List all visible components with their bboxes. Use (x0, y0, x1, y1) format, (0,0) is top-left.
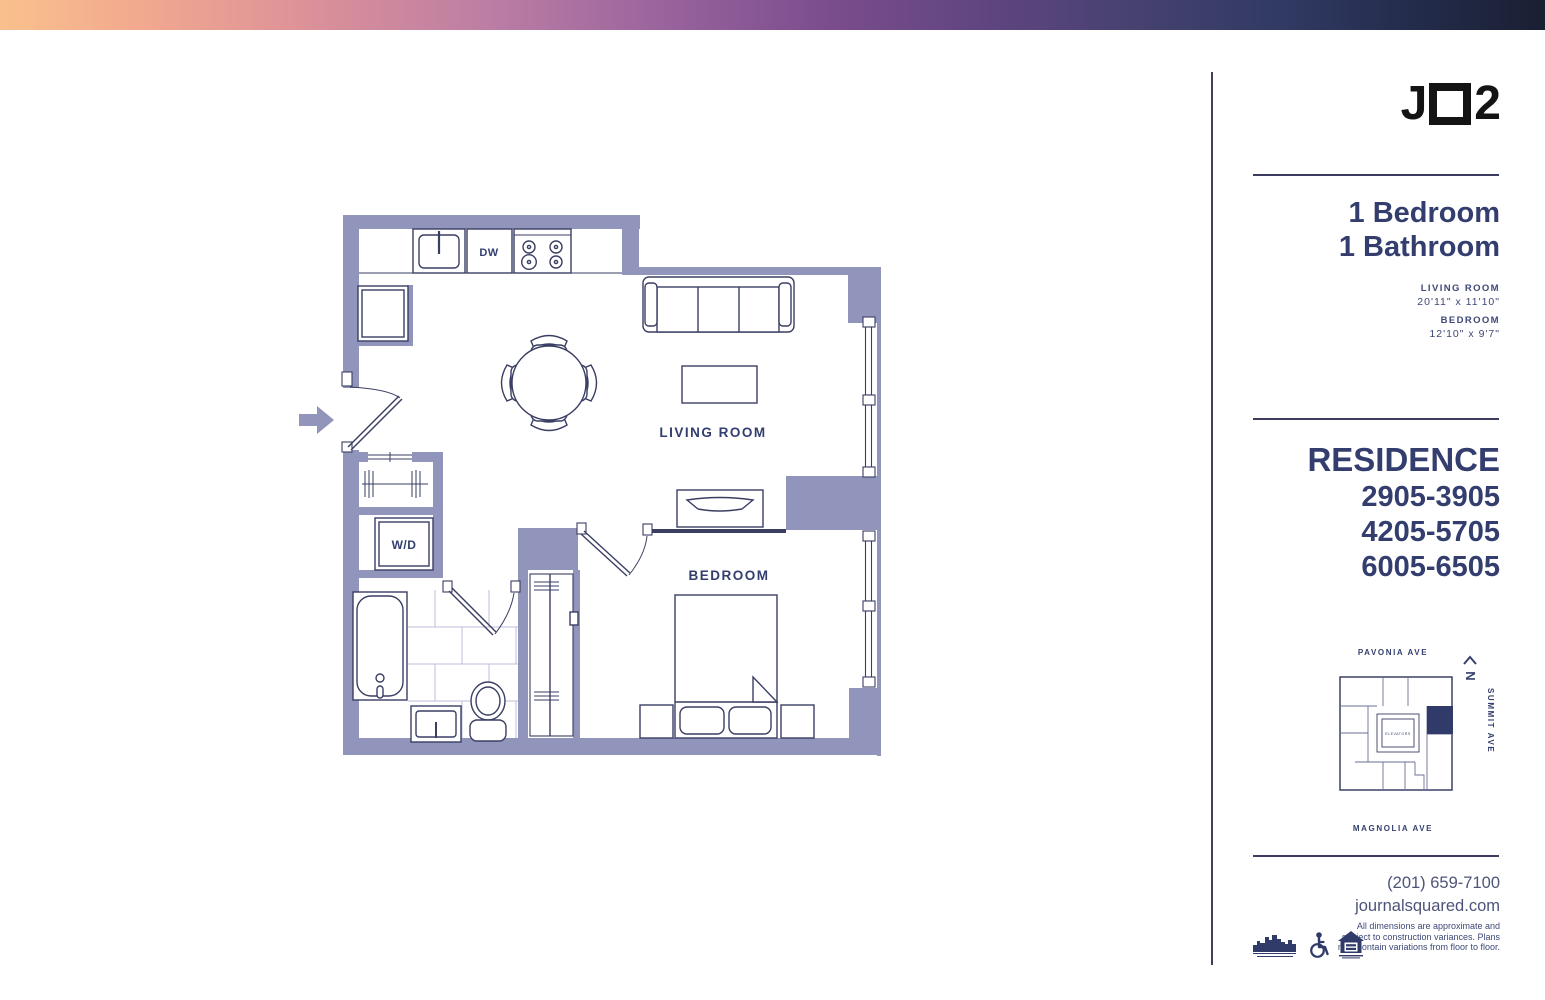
tv-screen (687, 498, 753, 512)
bedroom-window (863, 531, 875, 687)
stove (514, 229, 571, 273)
linen-closet (530, 574, 578, 736)
toilet (470, 682, 506, 741)
living-room-dim-label: LIVING ROOM (1417, 283, 1500, 294)
north-arrow-icon: N (1463, 657, 1478, 681)
gradient-banner (0, 0, 1545, 30)
logo-square-icon (1429, 83, 1471, 125)
phone-number: (201) 659-7100 (1355, 872, 1500, 895)
horizontal-rule (1253, 418, 1499, 420)
bed (675, 595, 777, 738)
walls (343, 215, 881, 756)
bedroom-label: BEDROOM (689, 568, 770, 583)
nightstand (640, 705, 673, 738)
bedroom-door (577, 523, 652, 576)
horizontal-rule (1253, 174, 1499, 176)
unit-title-line1: 1 Bedroom (1339, 196, 1500, 230)
dishwasher: DW (467, 229, 512, 273)
north-label: N (1463, 671, 1478, 680)
accessibility-icon (1308, 931, 1329, 959)
washer-dryer-label: W/D (392, 538, 417, 552)
residence-range: 4205-5705 (1307, 515, 1500, 550)
street-bottom-label: MAGNOLIA AVE (1353, 824, 1433, 833)
tv-console (677, 490, 763, 527)
kitchen: DW (358, 229, 622, 341)
closet-knob (570, 612, 578, 625)
living-room-window (863, 317, 875, 477)
unit-highlight (1427, 706, 1453, 734)
bedroom-dim-label: BEDROOM (1417, 315, 1500, 326)
refrigerator (358, 286, 408, 341)
living-room-label: LIVING ROOM (659, 425, 766, 440)
residence-heading: RESIDENCE (1307, 440, 1500, 480)
jsq2-logo: J 2 (1401, 80, 1500, 128)
vanity-sink (411, 706, 461, 742)
coffee-table (682, 366, 757, 403)
street-top-label: PAVONIA AVE (1358, 648, 1428, 657)
pillow (680, 707, 724, 734)
entry-door (342, 372, 402, 452)
elevators-label: ELEVATORS (1385, 732, 1411, 736)
kitchen-sink (413, 229, 465, 273)
unit-dimensions: LIVING ROOM 20'11" x 11'10" BEDROOM 12'1… (1417, 283, 1500, 347)
certification-icons (1253, 931, 1364, 959)
floor-plan: DW (290, 200, 900, 770)
bathtub (353, 592, 407, 700)
bedroom: BEDROOM (577, 523, 814, 738)
disclaimer-line: All dimensions are approximate and (1338, 921, 1500, 932)
dishwasher-label: DW (479, 247, 498, 259)
sofa (643, 277, 794, 332)
bathroom (353, 581, 520, 742)
living-room: LIVING ROOM (643, 277, 794, 527)
flyer-page: DW (0, 0, 1545, 1000)
equal-housing-icon (1338, 931, 1364, 959)
bedroom-dim-size: 12'10" x 9'7" (1417, 328, 1500, 340)
unit-title-line2: 1 Bathroom (1339, 230, 1500, 264)
unit-title: 1 Bedroom 1 Bathroom (1339, 196, 1500, 264)
entry-arrow-icon (299, 406, 334, 434)
skyline-logo (1253, 931, 1299, 959)
vertical-divider (1211, 72, 1213, 965)
nightstand (781, 705, 814, 738)
table-top (512, 346, 586, 420)
dining-table (502, 336, 597, 431)
washer-dryer: W/D (375, 518, 433, 570)
key-plan: PAVONIA AVE MAGNOLIA AVE N ELEVATORS (1320, 640, 1510, 840)
logo-2: 2 (1474, 80, 1500, 128)
logo-j: J (1401, 80, 1427, 128)
residence-block: RESIDENCE 2905-3905 4205-5705 6005-6505 (1307, 440, 1500, 585)
residence-range: 6005-6505 (1307, 550, 1500, 585)
contact-block: (201) 659-7100 journalsquared.com (1355, 872, 1500, 918)
website-link[interactable]: journalsquared.com (1355, 895, 1500, 918)
living-room-dim-size: 20'11" x 11'10" (1417, 296, 1500, 308)
horizontal-rule (1253, 855, 1499, 857)
street-right-label: SUMMIT AVE (1486, 688, 1495, 753)
residence-range: 2905-3905 (1307, 480, 1500, 515)
pillow (729, 707, 771, 734)
